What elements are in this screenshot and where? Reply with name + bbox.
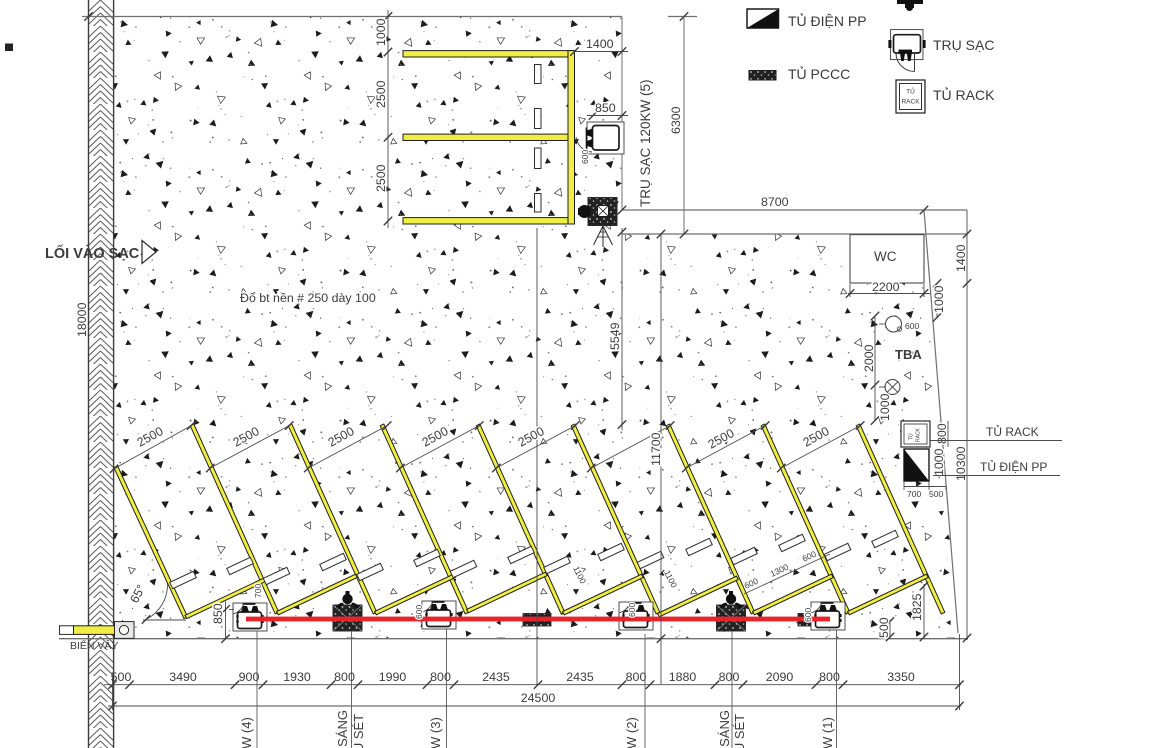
svg-text:RACK: RACK — [901, 99, 920, 106]
svg-text:600: 600 — [905, 321, 919, 331]
svg-text:1000: 1000 — [878, 393, 892, 421]
svg-text:1930: 1930 — [283, 670, 311, 684]
svg-text:2435: 2435 — [482, 670, 510, 684]
svg-text:RACK: RACK — [916, 427, 922, 442]
svg-text:ĐÈN CHIẾU SÁNG: ĐÈN CHIẾU SÁNG — [335, 710, 350, 748]
svg-text:3490: 3490 — [169, 670, 197, 684]
svg-text:800: 800 — [334, 670, 355, 684]
svg-text:TRỤ SẠC 120KW (5): TRỤ SẠC 120KW (5) — [638, 79, 653, 207]
svg-text:TRỤ SẠC 120KW (4): TRỤ SẠC 120KW (4) — [239, 717, 254, 748]
svg-text:TỦ ĐIỆN PP: TỦ ĐIỆN PP — [980, 459, 1047, 474]
svg-text:6300: 6300 — [669, 106, 683, 134]
svg-text:TỦ PCCC: TỦ PCCC — [788, 65, 850, 82]
svg-text:500: 500 — [929, 489, 943, 499]
svg-text:700: 700 — [253, 584, 263, 598]
svg-text:1000: 1000 — [932, 285, 946, 313]
svg-text:800: 800 — [430, 670, 451, 684]
svg-text:TỦ RACK: TỦ RACK — [986, 424, 1039, 439]
svg-text:BIỂN VÂY: BIỂN VÂY — [70, 639, 118, 652]
svg-text:5549: 5549 — [608, 322, 622, 350]
svg-text:18000: 18000 — [75, 302, 89, 337]
svg-text:1400: 1400 — [954, 244, 968, 272]
svg-text:TỦ ĐIỆN PP: TỦ ĐIỆN PP — [788, 12, 867, 29]
svg-text:800: 800 — [626, 670, 647, 684]
svg-text:TỦ RACK: TỦ RACK — [933, 86, 995, 103]
svg-text:3350: 3350 — [887, 670, 915, 684]
svg-text:ĐÈN CHIẾU SÁNG: ĐÈN CHIẾU SÁNG — [717, 710, 732, 748]
svg-text:2200: 2200 — [872, 280, 900, 294]
svg-text:900: 900 — [239, 670, 260, 684]
svg-text:700: 700 — [907, 489, 921, 499]
svg-text:2435: 2435 — [566, 670, 594, 684]
svg-text:1990: 1990 — [379, 670, 407, 684]
svg-text:2000: 2000 — [862, 344, 876, 372]
svg-text:TRỤ SẠC 120KW (2): TRỤ SẠC 120KW (2) — [624, 717, 639, 748]
svg-text:Đổ bt nền # 250 dày 100: Đổ bt nền # 250 dày 100 — [240, 291, 376, 305]
svg-text:KIM THU SÉT: KIM THU SÉT — [351, 714, 366, 748]
svg-text:1000: 1000 — [932, 448, 946, 476]
svg-text:TBA: TBA — [895, 347, 922, 362]
svg-text:850: 850 — [595, 101, 616, 115]
svg-text:8700: 8700 — [761, 195, 789, 209]
svg-text:800: 800 — [719, 670, 740, 684]
svg-text:LỐI VÀO SẠC: LỐI VÀO SẠC — [45, 244, 140, 262]
svg-text:1825: 1825 — [910, 593, 924, 621]
svg-text:TRỤ SẠC 120KW (1): TRỤ SẠC 120KW (1) — [820, 717, 835, 748]
svg-text:600: 600 — [803, 608, 813, 622]
svg-text:2500: 2500 — [374, 80, 388, 108]
svg-text:600: 600 — [580, 150, 590, 164]
svg-text:800: 800 — [819, 670, 840, 684]
svg-text:TỦ: TỦ — [908, 433, 915, 440]
svg-text:500: 500 — [111, 670, 132, 684]
svg-text:600: 600 — [627, 603, 637, 617]
svg-text:500: 500 — [877, 617, 891, 638]
svg-text:2090: 2090 — [766, 670, 794, 684]
svg-text:1880: 1880 — [669, 670, 697, 684]
svg-text:11700: 11700 — [649, 432, 663, 466]
svg-text:TRỤ SẠC 120KW (3): TRỤ SẠC 120KW (3) — [428, 717, 443, 748]
svg-text:600: 600 — [414, 605, 424, 619]
svg-text:2500: 2500 — [374, 164, 388, 192]
svg-text:TRỤ SẠC: TRỤ SẠC — [933, 37, 994, 53]
svg-text:WC: WC — [874, 249, 897, 264]
svg-text:24500: 24500 — [521, 691, 556, 705]
svg-text:KIM THU SÉT: KIM THU SÉT — [732, 714, 747, 748]
svg-text:TỦ: TỦ — [906, 87, 915, 96]
svg-text:1000: 1000 — [374, 18, 388, 46]
svg-text:1400: 1400 — [586, 37, 614, 51]
svg-text:850: 850 — [211, 603, 225, 624]
